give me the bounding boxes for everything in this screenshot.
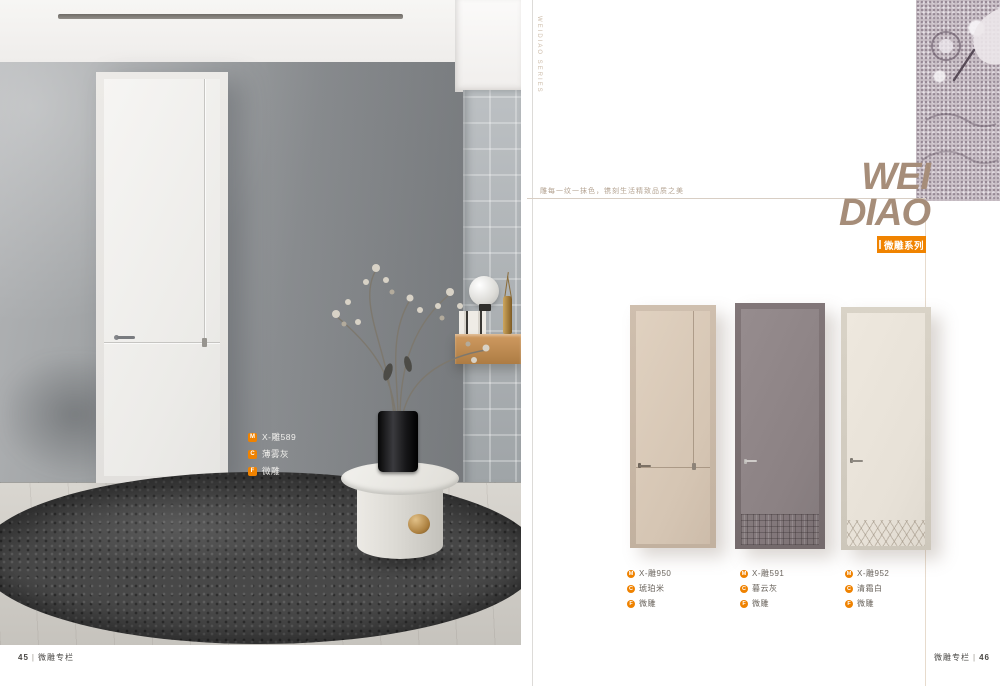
door-groove-vertical [693,311,694,467]
series-title-line1: WEI [690,160,930,194]
color-icon: C [740,585,748,593]
craft-icon: F [845,600,853,608]
model-icon: M [845,570,853,578]
model-icon: M [627,570,635,578]
interior-door-leaf [104,79,220,476]
craft-icon: F [248,467,257,476]
carved-fret-pattern-band [741,514,819,545]
page-gutter-line [532,0,533,686]
gold-ball-decor [408,514,430,534]
series-badge-label: 微雕系列 [884,238,924,252]
craft-name: 微雕 [857,598,874,609]
carved-lattice-pattern-band [847,520,925,546]
door-2-spec-label: MX-雕591 C暮云灰 F微雕 [740,568,784,609]
footer-separator: | [973,653,976,662]
color-icon: C [627,585,635,593]
color-name: 薄雾灰 [262,448,289,460]
black-glass-vase [378,411,418,472]
room-scene-photo: M X-雕589 C 薄雾灰 F 微雕 [0,0,521,645]
door-product-1 [630,305,716,548]
craft-row: F 微雕 [248,465,296,477]
door-3-leaf [847,313,925,546]
footer-separator: | [32,653,35,662]
door-handle [117,336,135,339]
left-page-footer: 45|微雕专栏 [18,652,74,663]
right-page-number: 46 [979,653,990,662]
badge-tick [879,240,881,249]
door-3-spec-label: MX-雕952 C清霜白 F微雕 [845,568,889,609]
craft-name: 微雕 [752,598,769,609]
left-page-number: 45 [18,653,29,662]
series-title: WEI DIAO [690,160,930,230]
door-groove-horizontal [636,467,710,468]
right-footer-label: 微雕专栏 [934,653,970,662]
color-name: 清霜白 [857,583,883,594]
door-1-spec-label: MX-雕950 C琥珀米 F微雕 [627,568,671,609]
color-name: 琥珀米 [639,583,665,594]
catalog-spread: M X-雕589 C 薄雾灰 F 微雕 45|微雕专栏 WEIDIAO SERI… [0,0,1000,686]
right-page-footer: 微雕专栏|46 [930,652,990,663]
door-metal-accent [202,338,207,347]
vertical-caption: WEIDIAO SERIES [536,16,542,94]
rug-sheen [30,486,330,566]
door-handle [639,465,651,467]
door-handle [851,460,863,462]
ceiling [0,0,455,62]
color-icon: C [845,585,853,593]
gold-vase [503,296,512,334]
door-product-2 [735,303,825,549]
door-1-leaf [636,311,710,544]
left-footer-label: 微雕专栏 [38,653,74,662]
series-title-line2: DIAO [690,196,930,230]
model-number: X-雕950 [639,568,671,579]
series-badge: 微雕系列 [877,236,926,253]
model-icon: M [740,570,748,578]
color-row: C 薄雾灰 [248,448,296,460]
room-door-spec-label: M X-雕589 C 薄雾灰 F 微雕 [248,431,296,477]
color-icon: C [248,450,257,459]
ceiling-drop-column [455,0,521,92]
craft-icon: F [627,600,635,608]
dried-branch-arrangement [292,252,502,420]
craft-name: 微雕 [639,598,656,609]
ceiling-recessed-light [58,14,403,19]
color-name: 暮云灰 [752,583,778,594]
model-number: X-雕589 [262,431,296,443]
craft-name: 微雕 [262,465,280,477]
model-number: X-雕591 [752,568,784,579]
model-row: M X-雕589 [248,431,296,443]
door-2-leaf [741,309,819,545]
model-icon: M [248,433,257,442]
interior-door [96,72,228,483]
door-product-3 [841,307,931,550]
door-handle [745,460,757,462]
door-metal-accent [692,463,696,470]
door-groove-vertical [204,79,205,342]
series-tagline: 雕每一纹一抹色，镌刻生活精致品质之美 [540,186,684,196]
craft-icon: F [740,600,748,608]
model-number: X-雕952 [857,568,889,579]
